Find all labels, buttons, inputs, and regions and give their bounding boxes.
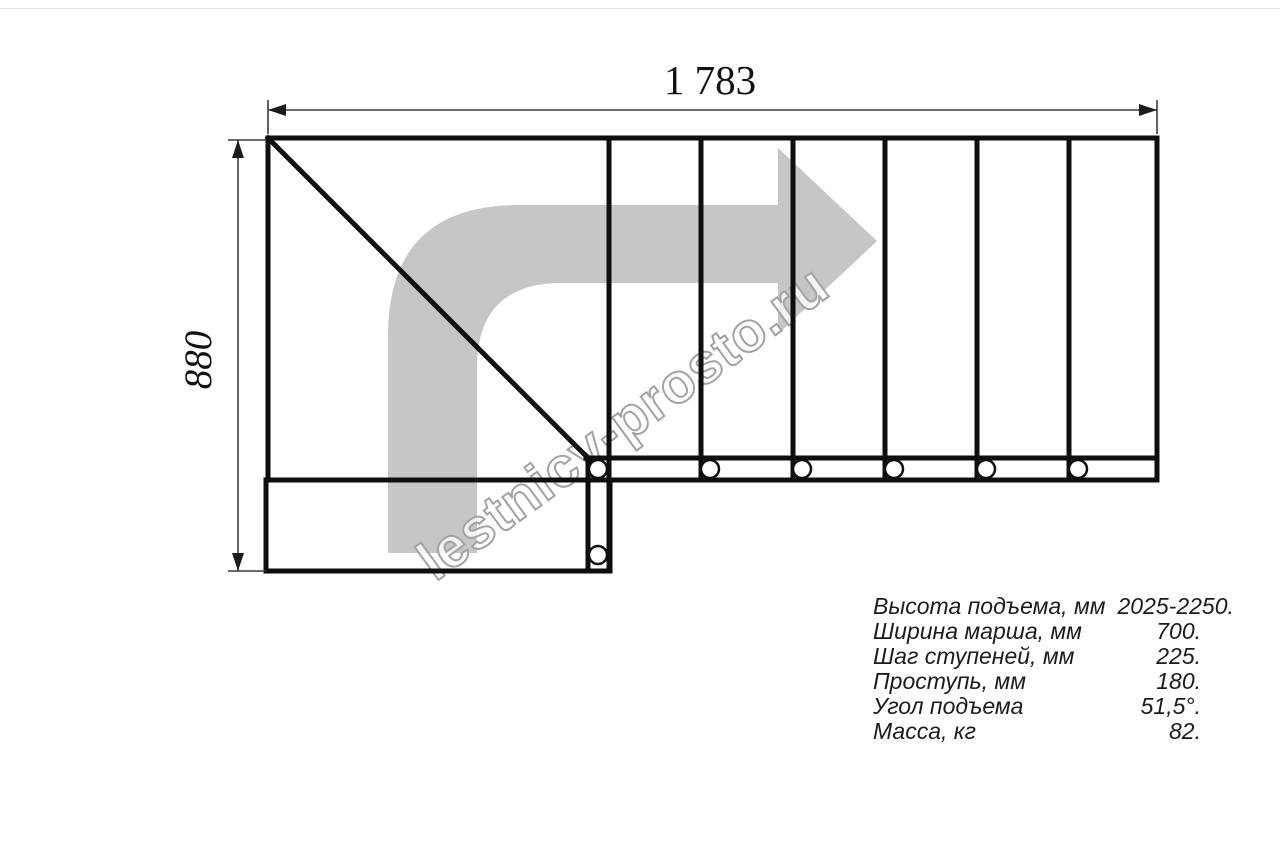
spec-value: 180. — [1156, 669, 1201, 694]
spec-label: Проступь, мм — [873, 669, 1026, 694]
direction-arrow — [388, 148, 877, 553]
baluster-posts — [589, 460, 1087, 564]
post-circle — [589, 546, 607, 564]
spec-row-height: Высота подъема, мм 2025-2250. — [873, 594, 1201, 619]
spec-row-width: Ширина марша, мм 700. — [873, 619, 1201, 644]
spec-table: Высота подъема, мм 2025-2250. Ширина мар… — [873, 594, 1201, 744]
left-dimension-label: 880 — [177, 331, 220, 390]
arrowhead-down — [232, 553, 244, 571]
spec-row-tread: Проступь, мм 180. — [873, 669, 1201, 694]
post-circle — [589, 460, 607, 478]
spec-value: 225. — [1156, 644, 1201, 669]
spec-row-angle: Угол подъема 51,5°. — [873, 694, 1201, 719]
arrowhead-up — [232, 140, 244, 158]
spec-label: Высота подъема, мм — [873, 594, 1106, 619]
post-circle — [1069, 460, 1087, 478]
spec-row-step: Шаг ступеней, мм 225. — [873, 644, 1201, 669]
spec-label: Угол подъема — [873, 694, 1023, 719]
post-circle — [885, 460, 903, 478]
top-dimension-label: 1 783 — [664, 57, 756, 103]
spec-value: 51,5°. — [1141, 694, 1201, 719]
spec-value: 82. — [1169, 719, 1201, 744]
stair-drawing-page: lestnicy-prosto.ru — [0, 0, 1280, 853]
post-circle — [977, 460, 995, 478]
spec-value: 2025-2250. — [1118, 594, 1234, 619]
spec-label: Ширина марша, мм — [873, 619, 1082, 644]
arrowhead-left — [268, 104, 286, 116]
post-circle — [793, 460, 811, 478]
arrowhead-right — [1139, 104, 1157, 116]
spec-value: 700. — [1156, 619, 1201, 644]
post-circle — [701, 460, 719, 478]
spec-label: Шаг ступеней, мм — [873, 644, 1074, 669]
spec-label: Масса, кг — [873, 719, 976, 744]
spec-row-mass: Масса, кг 82. — [873, 719, 1201, 744]
